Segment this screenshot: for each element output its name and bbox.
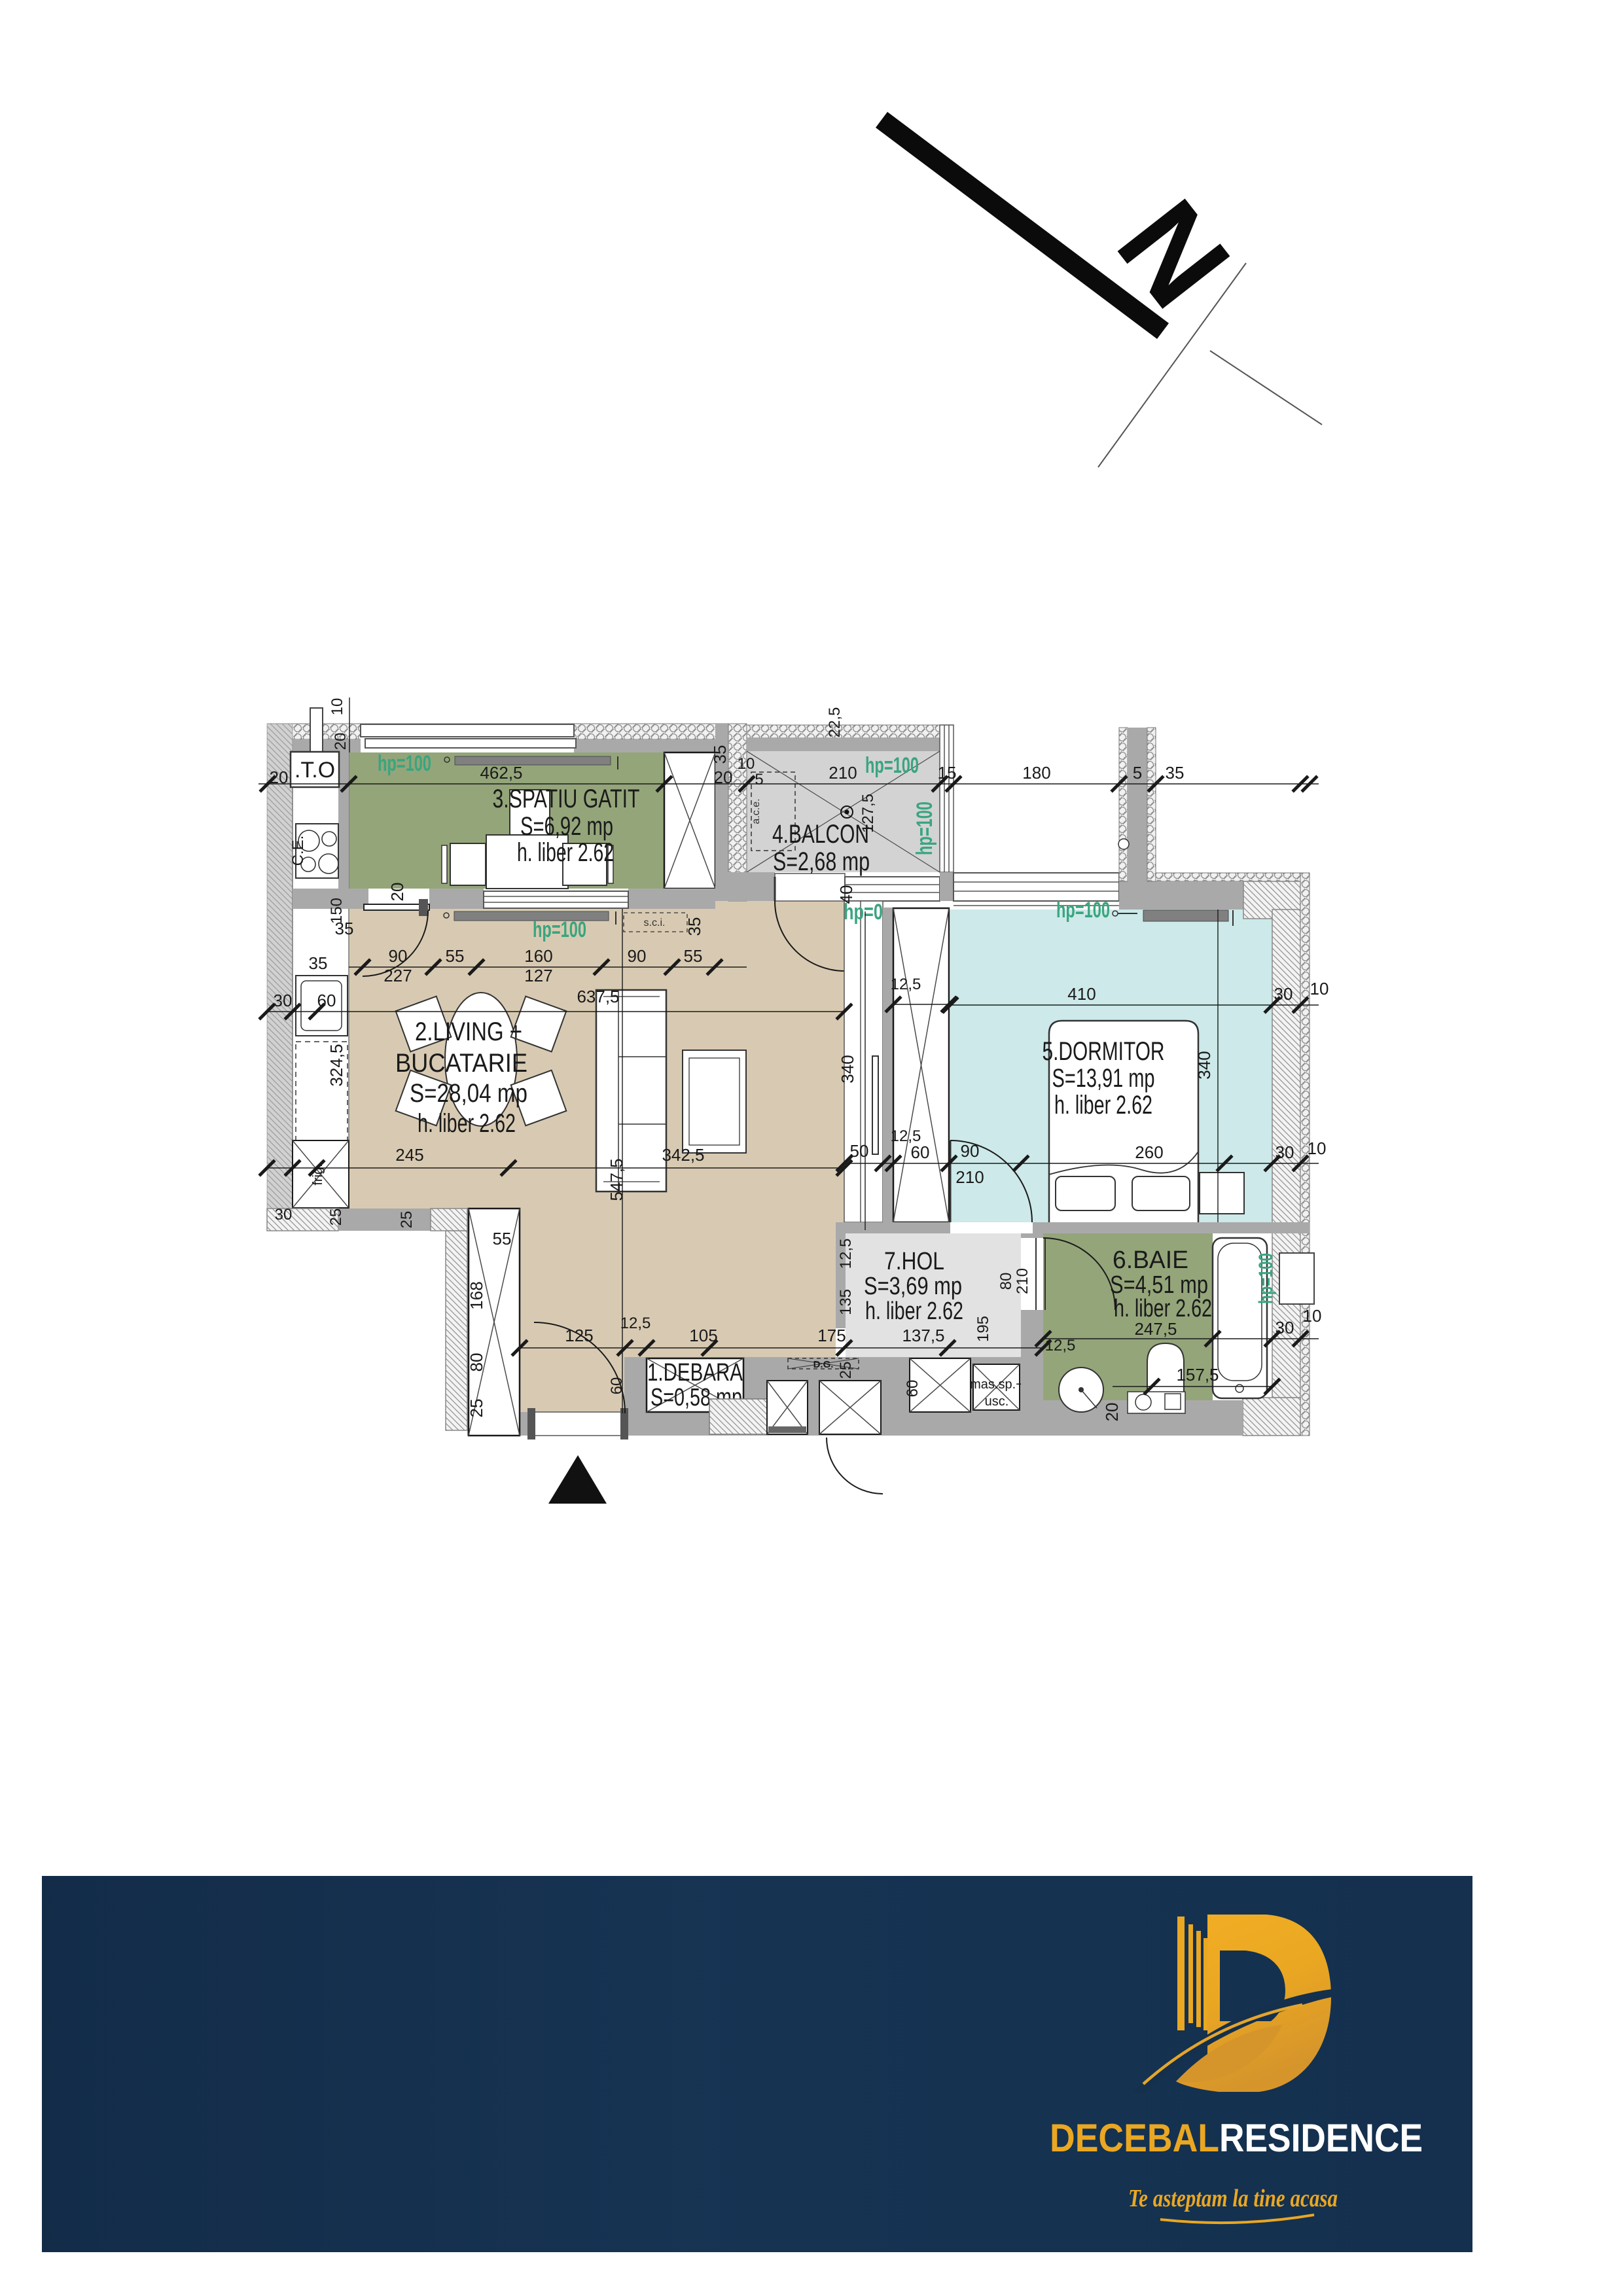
svg-text:90: 90 (389, 946, 408, 966)
svg-text:180: 180 (1022, 763, 1050, 783)
svg-text:25: 25 (398, 1211, 416, 1229)
svg-text:462,5: 462,5 (480, 763, 522, 783)
svg-text:55: 55 (493, 1229, 512, 1248)
svg-text:260: 260 (1135, 1142, 1163, 1162)
svg-text:210: 210 (955, 1167, 984, 1187)
svg-text:1.DEBARA: 1.DEBARA (647, 1359, 743, 1386)
svg-text:25: 25 (837, 1362, 855, 1379)
svg-text:s.c.i.: s.c.i. (644, 917, 666, 928)
svg-text:60: 60 (911, 1142, 930, 1162)
svg-text:hp=100: hp=100 (1255, 1253, 1277, 1304)
svg-text:10: 10 (329, 698, 346, 716)
svg-text:hp=100: hp=100 (1056, 898, 1110, 923)
svg-text:S=6,92 mp: S=6,92 mp (520, 812, 613, 841)
svg-text:12,5: 12,5 (891, 1127, 921, 1145)
svg-text:80: 80 (997, 1273, 1015, 1290)
svg-text:340: 340 (838, 1055, 857, 1083)
svg-text:hp=100: hp=100 (865, 753, 919, 778)
svg-text:247,5: 247,5 (1134, 1319, 1177, 1339)
svg-text:137,5: 137,5 (902, 1326, 944, 1345)
svg-text:40: 40 (836, 885, 856, 904)
svg-text:410: 410 (1067, 984, 1096, 1004)
svg-text:135: 135 (837, 1289, 855, 1315)
svg-text:30: 30 (275, 1206, 293, 1224)
svg-text:637,5: 637,5 (577, 987, 619, 1006)
svg-text:55: 55 (446, 946, 465, 966)
svg-text:210: 210 (829, 763, 857, 783)
svg-text:342,5: 342,5 (662, 1145, 704, 1165)
svg-text:90: 90 (628, 946, 647, 966)
svg-text:a.c.e.: a.c.e. (751, 798, 762, 824)
svg-text:S=28,04 mp: S=28,04 mp (410, 1079, 527, 1108)
svg-text:h. liber 2.62: h. liber 2.62 (418, 1109, 516, 1138)
svg-text:80: 80 (467, 1353, 486, 1372)
svg-text:30: 30 (274, 991, 293, 1010)
svg-text:195: 195 (974, 1316, 992, 1342)
svg-text:35: 35 (335, 919, 354, 938)
svg-text:15: 15 (938, 763, 957, 783)
svg-text:10: 10 (1303, 1306, 1322, 1326)
svg-text:105: 105 (689, 1326, 717, 1345)
svg-text:DECEBAL: DECEBAL (1050, 2116, 1219, 2160)
svg-text:h. liber 2.62: h. liber 2.62 (1114, 1295, 1212, 1322)
svg-text:30: 30 (1275, 1318, 1294, 1337)
svg-text:C.E.: C.E. (289, 836, 307, 866)
svg-text:35: 35 (1166, 763, 1185, 783)
svg-text:324,5: 324,5 (327, 1044, 346, 1086)
svg-text:35: 35 (710, 745, 730, 764)
svg-text:60: 60 (608, 1377, 626, 1395)
svg-text:20: 20 (714, 768, 733, 787)
svg-text:210: 210 (1014, 1268, 1031, 1294)
svg-text:127: 127 (524, 966, 552, 985)
svg-text:RESIDENCE: RESIDENCE (1219, 2116, 1423, 2160)
svg-text:7.HOL: 7.HOL (884, 1248, 944, 1275)
svg-text:227: 227 (383, 966, 412, 985)
svg-text:25: 25 (467, 1399, 486, 1418)
svg-text:hp=100: hp=100 (912, 802, 937, 855)
svg-text:25: 25 (327, 1209, 345, 1226)
svg-text:6.BAIE: 6.BAIE (1113, 1246, 1188, 1274)
svg-text:.T.O: .T.O (294, 758, 335, 783)
svg-text:12,5: 12,5 (620, 1315, 651, 1332)
svg-text:12,5: 12,5 (1045, 1337, 1076, 1354)
svg-text:30: 30 (1274, 984, 1293, 1004)
svg-text:mas.sp.+: mas.sp.+ (970, 1377, 1024, 1392)
svg-text:BUCATARIE: BUCATARIE (395, 1049, 527, 1078)
svg-text:20: 20 (1102, 1403, 1122, 1422)
svg-text:5.DORMITOR: 5.DORMITOR (1043, 1037, 1165, 1066)
svg-text:3.SPATIU GATIT: 3.SPATIU GATIT (493, 785, 640, 813)
svg-text:160: 160 (524, 946, 552, 966)
svg-text:S=13,91 mp: S=13,91 mp (1052, 1064, 1155, 1093)
svg-text:60: 60 (317, 991, 336, 1010)
svg-text:S=3,69 mp: S=3,69 mp (864, 1273, 962, 1300)
svg-text:157,5: 157,5 (1176, 1365, 1219, 1385)
svg-text:12,5: 12,5 (891, 976, 921, 993)
svg-text:h. liber 2.62: h. liber 2.62 (1054, 1091, 1152, 1120)
svg-text:20: 20 (332, 733, 349, 751)
svg-text:5: 5 (755, 771, 763, 788)
svg-text:20: 20 (387, 883, 407, 902)
svg-text:h. liber 2.62: h. liber 2.62 (865, 1298, 963, 1325)
svg-text:168: 168 (467, 1281, 486, 1309)
svg-text:35: 35 (309, 953, 328, 973)
svg-text:175: 175 (817, 1326, 846, 1345)
svg-text:12,5: 12,5 (837, 1239, 855, 1269)
svg-text:50: 50 (850, 1141, 869, 1161)
svg-text:Te asteptam la tine acasa: Te asteptam la tine acasa (1128, 2185, 1338, 2212)
svg-text:4.BALCON: 4.BALCON (772, 820, 869, 849)
svg-text:10: 10 (1308, 1139, 1327, 1158)
svg-text:usc.: usc. (985, 1394, 1009, 1409)
svg-text:30: 30 (1275, 1142, 1294, 1162)
svg-text:10: 10 (738, 755, 755, 773)
svg-text:125: 125 (565, 1326, 593, 1345)
svg-text:D.G.: D.G. (813, 1359, 834, 1370)
svg-text:S=2,68 mp: S=2,68 mp (773, 847, 870, 876)
svg-text:90: 90 (961, 1141, 980, 1161)
svg-text:22,5: 22,5 (826, 707, 844, 738)
svg-text:5: 5 (1133, 763, 1142, 783)
svg-text:245: 245 (395, 1145, 423, 1165)
svg-text:547,5: 547,5 (607, 1158, 626, 1201)
svg-text:10: 10 (1310, 979, 1329, 998)
svg-text:hp=100: hp=100 (533, 917, 586, 942)
svg-text:60: 60 (904, 1380, 921, 1398)
svg-text:35: 35 (685, 917, 704, 936)
svg-text:hp=100: hp=100 (378, 751, 431, 776)
svg-text:h. liber 2.62: h. liber 2.62 (517, 838, 614, 867)
svg-text:127,5: 127,5 (859, 794, 877, 833)
svg-text:340: 340 (1194, 1051, 1214, 1079)
svg-text:20: 20 (270, 768, 289, 787)
svg-text:2.LIVING +: 2.LIVING + (415, 1017, 522, 1046)
svg-text:55: 55 (684, 946, 703, 966)
